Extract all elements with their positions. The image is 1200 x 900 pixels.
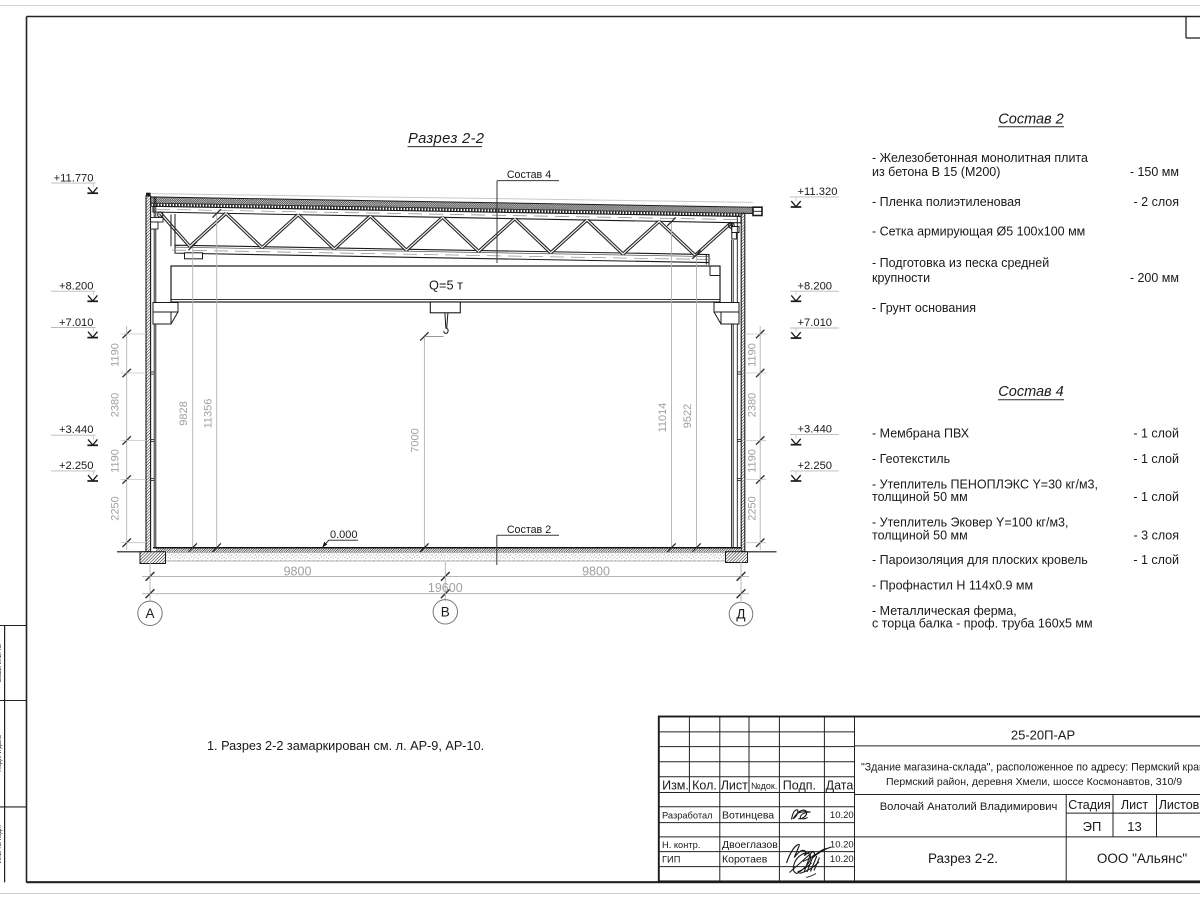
svg-text:Разрез 2-2: Разрез 2-2 xyxy=(408,131,485,147)
svg-text:1. Разрез 2-2 замаркирован см.: 1. Разрез 2-2 замаркирован см. л. АР-9, … xyxy=(207,739,484,753)
svg-text:ЭП: ЭП xyxy=(1083,819,1102,834)
svg-text:25-20П-АР: 25-20П-АР xyxy=(1011,728,1075,743)
svg-text:- Железобетонная монолитная п: - Железобетонная монолитная плита xyxy=(872,151,1088,165)
svg-text:1190: 1190 xyxy=(747,449,759,473)
svg-text:11014: 11014 xyxy=(657,403,669,433)
svg-text:Двоеглазов: Двоеглазов xyxy=(722,839,778,851)
svg-text:№док.: №док. xyxy=(751,781,777,791)
svg-text:9522: 9522 xyxy=(682,404,694,428)
svg-text:толщиной 50 мм: толщиной 50 мм xyxy=(872,490,968,504)
svg-text:10.20: 10.20 xyxy=(830,840,854,851)
svg-text:19600: 19600 xyxy=(428,581,463,595)
svg-text:крупности: крупности xyxy=(872,271,930,285)
svg-text:Состав 4: Состав 4 xyxy=(507,169,551,181)
svg-text:- 150 мм: - 150 мм xyxy=(1130,165,1179,179)
svg-text:- 3 слоя: - 3 слоя xyxy=(1134,529,1179,543)
svg-text:Состав 2: Состав 2 xyxy=(998,112,1063,128)
svg-text:1190: 1190 xyxy=(747,343,759,367)
svg-text:Волочай Анатолий Владимирович: Волочай Анатолий Владимирович xyxy=(880,801,1058,813)
svg-text:Лист: Лист xyxy=(1121,798,1148,812)
svg-text:- Мембрана ПВХ: - Мембрана ПВХ xyxy=(872,427,970,441)
svg-text:- 1 слой: - 1 слой xyxy=(1133,490,1179,504)
svg-text:Коротаев: Коротаев xyxy=(722,853,768,865)
svg-text:7000: 7000 xyxy=(410,428,422,452)
svg-text:+11.320: +11.320 xyxy=(798,186,838,198)
svg-text:Лист: Лист xyxy=(721,778,748,792)
svg-text:- Грунт основания: - Грунт основания xyxy=(872,301,976,315)
svg-text:ГИП: ГИП xyxy=(662,854,680,864)
svg-text:из бетона В 15 (М200): из бетона В 15 (М200) xyxy=(872,165,1000,179)
svg-text:2250: 2250 xyxy=(109,496,121,520)
svg-text:0.000: 0.000 xyxy=(330,529,358,541)
svg-text:10.20: 10.20 xyxy=(830,854,854,865)
svg-text:Листов: Листов xyxy=(1159,798,1200,812)
svg-text:9800: 9800 xyxy=(284,565,312,579)
svg-text:А: А xyxy=(145,606,154,621)
svg-text:9800: 9800 xyxy=(582,565,610,579)
svg-text:+3.440: +3.440 xyxy=(59,424,94,436)
svg-text:Изм.: Изм. xyxy=(662,778,689,792)
svg-text:2380: 2380 xyxy=(109,393,121,417)
svg-text:- Профнастил Н 114х0.9 мм: - Профнастил Н 114х0.9 мм xyxy=(872,579,1033,593)
svg-text:Разрез 2-2.: Разрез 2-2. xyxy=(928,851,998,866)
svg-text:Разработал: Разработал xyxy=(662,810,713,820)
svg-text:Подп. и дата: Подп. и дата xyxy=(0,735,3,772)
svg-text:Q=5 т: Q=5 т xyxy=(429,278,463,293)
svg-text:Кол.: Кол. xyxy=(692,778,717,792)
svg-text:1190: 1190 xyxy=(109,449,121,473)
svg-text:+2.250: +2.250 xyxy=(59,460,94,472)
svg-text:+3.440: +3.440 xyxy=(798,424,833,436)
svg-text:Н. контр.: Н. контр. xyxy=(662,840,700,850)
svg-text:2380: 2380 xyxy=(747,393,759,417)
svg-text:"Здание магазина-склада", расп: "Здание магазина-склада", расположенное … xyxy=(861,762,1200,774)
svg-text:Стадия: Стадия xyxy=(1068,798,1111,812)
svg-text:+2.250: +2.250 xyxy=(798,460,833,472)
svg-text:Взам. инв. №: Взам. инв. № xyxy=(0,643,3,682)
svg-text:+11.770: +11.770 xyxy=(54,172,94,184)
svg-text:с торца балка - проф. труба 16: с торца балка - проф. труба 160х5 мм xyxy=(872,617,1093,631)
svg-text:Пермский район, деревня Хмели,: Пермский район, деревня Хмели, шоссе Кос… xyxy=(886,776,1182,788)
svg-text:Д: Д xyxy=(736,607,745,622)
svg-text:Дата: Дата xyxy=(826,778,854,792)
svg-text:толщиной 50 мм: толщиной 50 мм xyxy=(872,529,968,543)
svg-text:+7.010: +7.010 xyxy=(798,317,833,329)
svg-text:- Геотекстиль: - Геотекстиль xyxy=(872,452,950,466)
svg-text:Подп.: Подп. xyxy=(783,778,816,792)
svg-text:Состав 4: Состав 4 xyxy=(998,384,1063,400)
svg-text:- Подготовка из песка средней: - Подготовка из песка средней xyxy=(872,256,1049,270)
svg-text:Состав 2: Состав 2 xyxy=(507,524,551,536)
svg-text:ООО "Альянс": ООО "Альянс" xyxy=(1097,851,1187,866)
svg-text:- Пароизоляция для плоских кро: - Пароизоляция для плоских кровель xyxy=(872,553,1088,567)
svg-text:11356: 11356 xyxy=(202,399,214,429)
svg-text:- Пленка полиэтиленовая: - Пленка полиэтиленовая xyxy=(872,195,1021,209)
svg-text:10.20: 10.20 xyxy=(830,810,854,821)
svg-text:- 200 мм: - 200 мм xyxy=(1130,271,1179,285)
svg-text:В: В xyxy=(441,605,450,620)
svg-text:- 2 слоя: - 2 слоя xyxy=(1134,195,1179,209)
svg-text:Вотинцева: Вотинцева xyxy=(722,809,774,821)
svg-text:Инв. № подл.: Инв. № подл. xyxy=(0,824,3,863)
svg-text:- 1 слой: - 1 слой xyxy=(1133,427,1179,441)
svg-text:- 1 слой: - 1 слой xyxy=(1133,452,1179,466)
svg-text:- Утеплитель Эковер Y=100 кг/м: - Утеплитель Эковер Y=100 кг/м3, xyxy=(872,516,1068,530)
svg-text:2250: 2250 xyxy=(747,496,759,520)
svg-text:9828: 9828 xyxy=(178,401,190,425)
svg-text:- Сетка армирующая Ø5 100х100: - Сетка армирующая Ø5 100х100 мм xyxy=(872,225,1085,239)
svg-text:13: 13 xyxy=(1127,819,1141,834)
svg-text:1190: 1190 xyxy=(109,343,121,367)
svg-text:- 1 слой: - 1 слой xyxy=(1133,553,1179,567)
